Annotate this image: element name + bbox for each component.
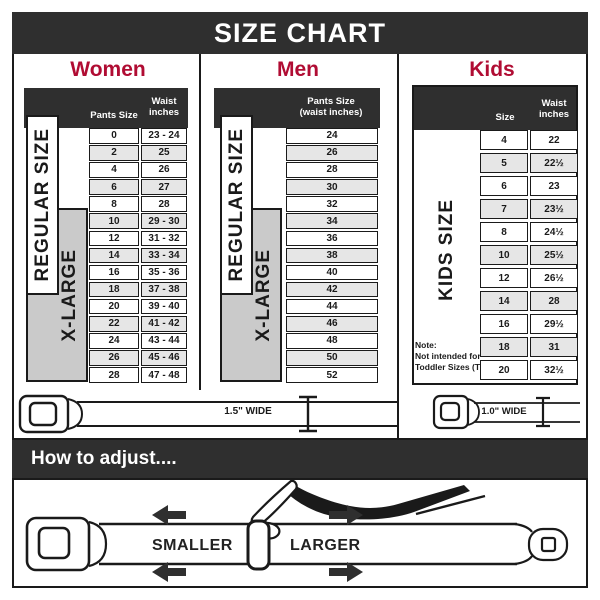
size-cell: 26 [286, 145, 378, 161]
size-cell: 12 [480, 268, 528, 288]
table-row: 1837 - 38 [89, 282, 187, 298]
adjust-title: How to adjust.... [12, 440, 588, 478]
table-row: 42 [286, 282, 378, 298]
table-row: 24 [286, 128, 378, 144]
table-row: 1629½ [480, 314, 578, 334]
size-cell: 32 [286, 196, 378, 212]
adult-belt-width-label: 1.5" WIDE [217, 406, 279, 417]
kids-size-label-wrap: KIDS SIZE [428, 150, 466, 350]
table-row: 1428 [480, 291, 578, 311]
table-row: 40 [286, 265, 378, 281]
table-row: 1025½ [480, 245, 578, 265]
table-row: 50 [286, 350, 378, 366]
waist-cell: 25 [141, 145, 187, 161]
size-cell: 46 [286, 316, 378, 332]
size-cell: 10 [480, 245, 528, 265]
kids-size-label: KIDS SIZE [436, 199, 458, 301]
size-cell: 16 [89, 265, 139, 281]
table-row: 52 [286, 367, 378, 383]
size-cell: 5 [480, 153, 528, 173]
size-cell: 24 [286, 128, 378, 144]
table-row: 26 [286, 145, 378, 161]
table-row: 723½ [480, 199, 578, 219]
men-xlarge-label: X-LARGE [253, 249, 275, 342]
women-header-pants-size: Pants Size [84, 110, 144, 121]
waist-cell: 28 [530, 291, 578, 311]
size-cell: 8 [480, 222, 528, 242]
table-row: 2847 - 48 [89, 367, 187, 383]
table-row: 1831 [480, 337, 578, 357]
kids-header-size: Size [480, 112, 530, 123]
size-cell: 4 [89, 162, 139, 178]
waist-cell: 26½ [530, 268, 578, 288]
table-row: 28 [286, 162, 378, 178]
table-row: 46 [286, 316, 378, 332]
waist-cell: 22½ [530, 153, 578, 173]
table-row: 824½ [480, 222, 578, 242]
size-cell: 28 [286, 162, 378, 178]
table-row: 2645 - 46 [89, 350, 187, 366]
size-cell: 50 [286, 350, 378, 366]
size-cell: 38 [286, 248, 378, 264]
waist-cell: 33 - 34 [141, 248, 187, 264]
table-row: 1231 - 32 [89, 231, 187, 247]
women-regular-label: REGULAR SIZE [32, 128, 54, 281]
waist-cell: 23 [530, 176, 578, 196]
waist-cell: 31 [530, 337, 578, 357]
size-cell: 48 [286, 333, 378, 349]
waist-cell: 47 - 48 [141, 367, 187, 383]
table-row: 44 [286, 299, 378, 315]
women-header-waist: Waist inches [139, 96, 189, 118]
table-row: 38 [286, 248, 378, 264]
table-row: 32 [286, 196, 378, 212]
table-row: 1226½ [480, 268, 578, 288]
table-row: 828 [89, 196, 187, 212]
table-row: 2032½ [480, 360, 578, 380]
size-cell: 26 [89, 350, 139, 366]
waist-cell: 27 [141, 179, 187, 195]
hand-icon [288, 485, 470, 519]
size-cell: 2 [89, 145, 139, 161]
size-cell: 6 [89, 179, 139, 195]
waist-cell: 24½ [530, 222, 578, 242]
size-cell: 18 [480, 337, 528, 357]
size-cell: 28 [89, 367, 139, 383]
table-row: 48 [286, 333, 378, 349]
table-row: 2443 - 44 [89, 333, 187, 349]
waist-cell: 31 - 32 [141, 231, 187, 247]
waist-cell: 35 - 36 [141, 265, 187, 281]
size-cell: 22 [89, 316, 139, 332]
size-cell: 20 [480, 360, 528, 380]
table-row: 1635 - 36 [89, 265, 187, 281]
waist-cell: 39 - 40 [141, 299, 187, 315]
size-cell: 16 [480, 314, 528, 334]
waist-cell: 43 - 44 [141, 333, 187, 349]
table-row: 36 [286, 231, 378, 247]
size-cell: 6 [480, 176, 528, 196]
men-section-title: Men [222, 58, 374, 82]
women-table: 023 - 242254266278281029 - 301231 - 3214… [89, 128, 187, 384]
waist-cell: 29 - 30 [141, 213, 187, 229]
waist-cell: 26 [141, 162, 187, 178]
table-row: 522½ [480, 153, 578, 173]
waist-cell: 29½ [530, 314, 578, 334]
size-cell: 36 [286, 231, 378, 247]
women-xlarge-label: X-LARGE [59, 249, 81, 342]
kids-table-header: Size Waist inches [414, 87, 576, 130]
waist-cell: 28 [141, 196, 187, 212]
page-title: SIZE CHART [12, 12, 588, 54]
men-table: 242628303234363840424446485052 [286, 128, 378, 384]
waist-cell: 37 - 38 [141, 282, 187, 298]
size-cell: 4 [480, 130, 528, 150]
women-regular-box: REGULAR SIZE [26, 115, 59, 295]
table-row: 1029 - 30 [89, 213, 187, 229]
waist-cell: 22 [530, 130, 578, 150]
size-cell: 30 [286, 179, 378, 195]
men-regular-box: REGULAR SIZE [220, 115, 253, 295]
size-cell: 18 [89, 282, 139, 298]
waist-cell: 41 - 42 [141, 316, 187, 332]
table-row: 627 [89, 179, 187, 195]
divider-men-kids [397, 54, 399, 440]
size-cell: 0 [89, 128, 139, 144]
table-row: 1433 - 34 [89, 248, 187, 264]
waist-cell: 25½ [530, 245, 578, 265]
kids-belt-width-label: 1.0" WIDE [475, 406, 533, 417]
smaller-label: SMALLER [152, 537, 228, 555]
size-cell: 8 [89, 196, 139, 212]
arrow-left-icon [152, 505, 186, 525]
size-cell: 40 [286, 265, 378, 281]
size-cell: 12 [89, 231, 139, 247]
waist-cell: 23½ [530, 199, 578, 219]
size-cell: 20 [89, 299, 139, 315]
size-cell: 44 [286, 299, 378, 315]
table-row: 2241 - 42 [89, 316, 187, 332]
men-header-pants-size: Pants Size (waist inches) [286, 96, 376, 118]
size-cell: 42 [286, 282, 378, 298]
table-row: 30 [286, 179, 378, 195]
size-cell: 24 [89, 333, 139, 349]
table-row: 225 [89, 145, 187, 161]
waist-cell: 45 - 46 [141, 350, 187, 366]
kids-header-waist: Waist inches [530, 98, 578, 120]
size-cell: 14 [480, 291, 528, 311]
table-row: 623 [480, 176, 578, 196]
table-row: 426 [89, 162, 187, 178]
size-cell: 7 [480, 199, 528, 219]
size-cell: 52 [286, 367, 378, 383]
belt-slider-icon [248, 521, 269, 569]
title-bar: SIZE CHART [12, 12, 588, 54]
adjust-title-bar: How to adjust.... [12, 440, 588, 478]
larger-label: LARGER [290, 537, 360, 555]
waist-cell: 23 - 24 [141, 128, 187, 144]
table-row: 34 [286, 213, 378, 229]
women-section-title: Women [32, 58, 184, 82]
kids-section-title: Kids [416, 58, 568, 82]
size-cell: 34 [286, 213, 378, 229]
size-cell: 14 [89, 248, 139, 264]
divider-women-men [199, 54, 201, 390]
size-cell: 10 [89, 213, 139, 229]
kids-note: Note: Not intended for Toddler Sizes (T) [415, 340, 485, 373]
table-row: 023 - 24 [89, 128, 187, 144]
table-row: 422 [480, 130, 578, 150]
size-chart-page: SIZE CHART Women Men Kids Pants Size Wai… [0, 0, 600, 600]
men-regular-label: REGULAR SIZE [226, 128, 248, 281]
table-row: 2039 - 40 [89, 299, 187, 315]
kids-table: 422522½623723½824½1025½1226½14281629½183… [480, 130, 578, 383]
adjust-belt-illustration [15, 480, 585, 586]
adult-belt-illustration [15, 390, 398, 440]
waist-cell: 32½ [530, 360, 578, 380]
